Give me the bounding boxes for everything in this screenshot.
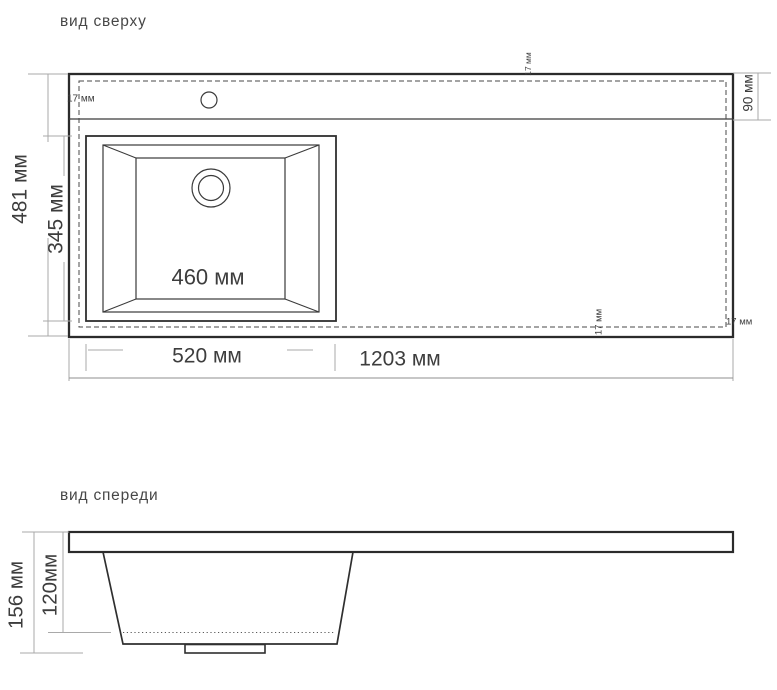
- dim-offset-top-label: 17 мм: [523, 52, 533, 76]
- dim-bowl-outer-width: 520 мм: [86, 344, 335, 371]
- dim-rear-strip-label: 90 мм: [741, 74, 756, 111]
- dim-rear-strip: 90 мм: [733, 73, 771, 120]
- sink-bowl: 460 мм: [86, 136, 336, 321]
- bowl-rim-outer: [86, 136, 336, 321]
- dim-offset-right-label: 17 мм: [726, 317, 752, 328]
- sink-technical-drawing: вид сверху 460 мм 481 мм: [0, 0, 777, 690]
- countertop-slab: [69, 532, 733, 552]
- dim-overall-width: 1203 мм: [69, 339, 733, 381]
- front-view-title: вид спереди: [60, 487, 158, 504]
- dim-bowl-inner-width: 460 мм: [171, 265, 244, 290]
- dim-bowl-depth: 345 мм: [43, 136, 72, 321]
- bowl-profile: [103, 552, 353, 644]
- dim-overall-height-label: 156 мм: [5, 561, 28, 629]
- dim-offset-left-label: 17 мм: [67, 94, 95, 105]
- dim-bowl-depth-label: 345 мм: [45, 184, 68, 254]
- dim-overall-depth-label: 481 мм: [9, 154, 32, 224]
- top-view: вид сверху 460 мм 481 мм: [0, 0, 777, 460]
- front-view: вид спереди 156 мм 120мм: [0, 460, 777, 690]
- top-view-title: вид сверху: [60, 13, 147, 30]
- drain-trap: [185, 645, 265, 654]
- dim-bowl-outer-width-label: 520 мм: [172, 345, 242, 368]
- dim-bowl-height-label: 120мм: [39, 554, 62, 616]
- dim-overall-width-label: 1203 мм: [359, 348, 440, 371]
- dim-offset-bottom-label: 17 мм: [594, 309, 605, 335]
